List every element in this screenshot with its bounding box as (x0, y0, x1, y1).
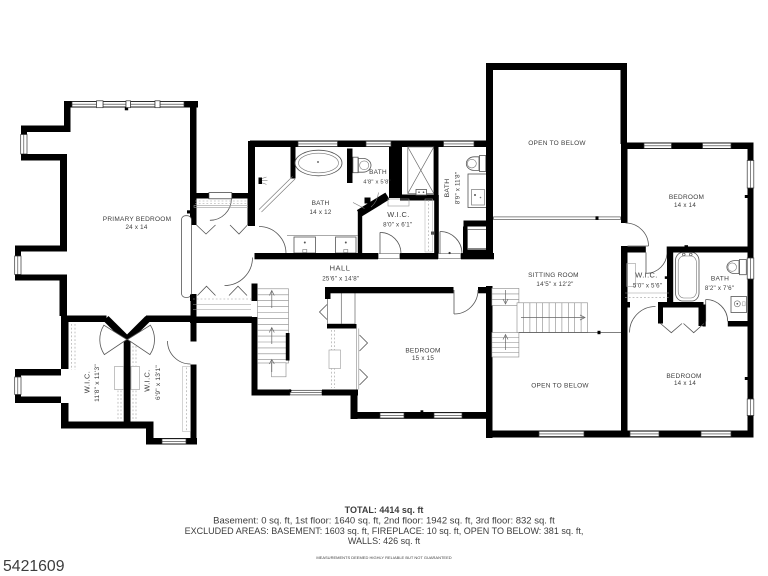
svg-text:14'5" x 12'2": 14'5" x 12'2" (536, 281, 573, 288)
svg-text:15 x 15: 15 x 15 (412, 355, 434, 362)
svg-text:24 x 14: 24 x 14 (125, 224, 147, 231)
svg-text:BEDROOM: BEDROOM (669, 194, 704, 201)
svg-text:W.I.C.: W.I.C. (143, 369, 152, 392)
svg-text:14 x 14: 14 x 14 (674, 380, 696, 387)
svg-text:SITTING ROOM: SITTING ROOM (528, 272, 579, 279)
svg-text:OPEN TO BELOW: OPEN TO BELOW (531, 382, 589, 389)
svg-text:WALLS: 426 sq. ft: WALLS: 426 sq. ft (348, 536, 421, 546)
svg-text:TOTAL: 4414 sq. ft: TOTAL: 4414 sq. ft (345, 505, 424, 515)
svg-text:W.I.C.: W.I.C. (387, 210, 410, 219)
svg-text:5421609: 5421609 (3, 558, 65, 575)
svg-text:BEDROOM: BEDROOM (405, 347, 440, 354)
svg-text:BEDROOM: BEDROOM (666, 373, 701, 380)
svg-text:4'8" x 5'8": 4'8" x 5'8" (363, 180, 391, 186)
svg-text:11'8" x 11'3": 11'8" x 11'3" (94, 364, 101, 402)
svg-text:8'9" x 11'8": 8'9" x 11'8" (455, 172, 462, 204)
svg-text:BATH: BATH (711, 275, 729, 282)
svg-text:W.I.C.: W.I.C. (83, 371, 92, 394)
svg-text:PRIMARY BEDROOM: PRIMARY BEDROOM (103, 216, 172, 223)
svg-text:25'6" x 14'8": 25'6" x 14'8" (322, 276, 359, 283)
svg-text:14 x 12: 14 x 12 (309, 209, 331, 216)
svg-text:BATH: BATH (369, 169, 387, 176)
svg-text:14 x 14: 14 x 14 (674, 202, 696, 209)
svg-text:OPEN TO BELOW: OPEN TO BELOW (528, 140, 586, 147)
svg-text:HALL: HALL (330, 263, 351, 272)
svg-text:8'2" x 7'6": 8'2" x 7'6" (705, 285, 734, 292)
svg-text:MEASUREMENTS DEEMED HIGHLY REL: MEASUREMENTS DEEMED HIGHLY RELIABLE BUT … (316, 555, 451, 560)
svg-text:EXCLUDED AREAS: BASEMENT: 1603: EXCLUDED AREAS: BASEMENT: 1603 sq. ft, F… (185, 526, 584, 536)
svg-text:8'0" x 6'1": 8'0" x 6'1" (383, 221, 412, 228)
svg-text:6'9" x 13'1": 6'9" x 13'1" (155, 365, 162, 400)
svg-text:BATH: BATH (312, 200, 330, 207)
svg-text:5'0" x 5'6": 5'0" x 5'6" (633, 282, 662, 289)
svg-text:W.I.C.: W.I.C. (635, 271, 658, 280)
svg-text:BATH: BATH (444, 179, 451, 198)
